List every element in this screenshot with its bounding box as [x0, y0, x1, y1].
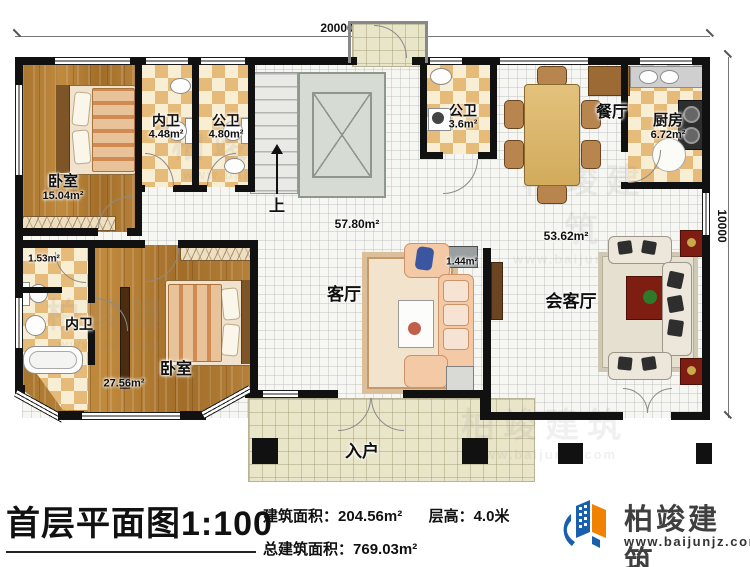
- total-area-value: 769.03m²: [353, 541, 417, 558]
- wall: [298, 390, 338, 398]
- wall: [22, 287, 62, 293]
- wall: [483, 248, 491, 412]
- dining-chair: [504, 140, 524, 169]
- sofa-cushion: [443, 328, 469, 350]
- armchair: [404, 355, 448, 388]
- table-decor: [408, 322, 421, 335]
- room-label-bath-inner-top: 内卫 4.48m²: [149, 113, 184, 142]
- area-label-tv-nook: 1.44m²: [446, 256, 478, 268]
- sofa-cushion: [443, 280, 469, 302]
- wall: [135, 185, 145, 192]
- kitchen-sink: [660, 70, 679, 84]
- building-area-value: 204.56m²: [338, 508, 402, 525]
- right-dimension-label: 10000: [715, 209, 729, 242]
- wall: [15, 228, 98, 236]
- burner: [683, 106, 700, 123]
- floor-plan-page: 20000 10000 柏竣建筑www.baijunjz.com 柏竣建筑www…: [0, 0, 750, 567]
- dining-table: [524, 84, 580, 186]
- column: [252, 438, 278, 464]
- room-label-bath-inner-bottom: 内卫: [65, 316, 93, 332]
- plant: [643, 290, 657, 304]
- building-area-stat: 建筑面积：204.56m² 层高：4.0米: [263, 505, 509, 526]
- area-label-bedroom-bottom: 27.56m²: [104, 378, 145, 391]
- pillow: [72, 129, 92, 164]
- sofa-pillow: [617, 356, 632, 370]
- dining-chair: [504, 100, 524, 129]
- column: [558, 443, 583, 464]
- tv-stand: [120, 287, 130, 389]
- room-label-entry: 入户: [345, 442, 379, 462]
- window: [500, 57, 588, 65]
- sofa-pillow: [641, 356, 657, 371]
- window: [430, 57, 462, 65]
- total-area-stat: 总建筑面积：769.03m²: [263, 538, 417, 559]
- corner-table: [446, 366, 474, 392]
- wall: [88, 330, 95, 365]
- pillow: [220, 287, 240, 321]
- total-area-label: 总建筑面积：: [263, 541, 353, 558]
- porch-edge: [425, 21, 428, 63]
- pillow: [71, 91, 91, 127]
- kitchen-sink: [639, 70, 658, 84]
- shaft-cross: [312, 92, 372, 178]
- wall: [671, 412, 710, 420]
- hall-cabinet: [491, 262, 503, 320]
- dining-chair: [581, 140, 601, 169]
- window: [55, 57, 130, 65]
- logo-icon: [556, 492, 620, 556]
- stairs-direction-arrow: [276, 152, 278, 194]
- person-figure: [414, 246, 434, 271]
- wall: [248, 57, 255, 192]
- wall: [621, 182, 709, 189]
- room-label-dining: 餐厅: [596, 104, 628, 122]
- porch-edge: [348, 21, 428, 24]
- window: [201, 57, 245, 65]
- wall: [15, 240, 145, 248]
- sofa-pillow: [667, 295, 685, 313]
- room-label-bedroom-bottom: 卧室: [160, 361, 192, 379]
- wall: [58, 411, 84, 420]
- pillow: [221, 323, 241, 356]
- column: [462, 438, 488, 464]
- wall: [127, 228, 142, 236]
- area-label-reception: 53.62m²: [544, 230, 589, 244]
- stairs-arrow-head: [271, 144, 283, 154]
- side-table-decor: [687, 238, 696, 247]
- wall: [135, 57, 142, 235]
- sofa-pillow: [667, 319, 684, 337]
- bed-blanket: [168, 284, 222, 362]
- plan-title: 首层平面图1:100: [6, 496, 273, 545]
- bathtub-inner: [29, 351, 77, 369]
- bed-headboard: [56, 85, 70, 173]
- floor-height-label: 层高：: [429, 508, 474, 525]
- wall: [702, 57, 710, 420]
- wall: [250, 245, 258, 398]
- sofa-pillow: [617, 240, 633, 255]
- window: [15, 85, 23, 175]
- wall: [478, 152, 497, 159]
- window: [263, 390, 298, 398]
- staircase: [250, 72, 298, 194]
- window: [640, 57, 692, 65]
- washing-machine-door: [432, 112, 444, 124]
- floor-height-value: 4.0米: [474, 508, 510, 525]
- dining-chair: [537, 184, 567, 204]
- wall: [178, 240, 258, 248]
- room-label-reception: 会客厅: [546, 292, 597, 312]
- room-label-kitchen: 厨房 6.72m²: [651, 112, 686, 142]
- wall: [192, 57, 199, 185]
- window: [702, 193, 710, 235]
- dining-chair: [537, 66, 567, 86]
- wall: [480, 412, 623, 420]
- sofa-pillow: [641, 240, 657, 255]
- area-label-closet: 1.53m²: [28, 253, 60, 265]
- window: [146, 57, 188, 65]
- building-area-label: 建筑面积：: [263, 508, 338, 525]
- logo-website: www.baijunjz.com: [624, 534, 750, 549]
- bay-window: [82, 412, 182, 420]
- room-label-bath-public-top: 公卫 4.80m²: [209, 113, 244, 142]
- area-label-hall: 57.80m²: [335, 218, 380, 232]
- wall: [420, 152, 443, 159]
- wall: [235, 185, 255, 192]
- logo-company-name: 柏竣建筑: [624, 496, 750, 567]
- porch-edge: [348, 21, 351, 63]
- wall: [88, 248, 95, 303]
- wall: [420, 57, 427, 159]
- room-label-bedroom-top: 卧室 15.04m²: [43, 173, 84, 203]
- stairs-up-label: 上: [269, 198, 285, 216]
- title-underline: [6, 551, 256, 553]
- wardrobe: [180, 246, 252, 261]
- sink: [25, 315, 46, 336]
- wall: [173, 185, 207, 192]
- sofa-cushion: [443, 304, 469, 326]
- sink: [170, 78, 191, 94]
- wall: [490, 57, 497, 159]
- sink: [430, 68, 452, 85]
- side-table-decor: [687, 366, 696, 375]
- wall: [403, 390, 488, 398]
- window: [15, 298, 23, 348]
- column: [696, 443, 712, 464]
- bed-blanket: [92, 88, 135, 172]
- room-label-living: 客厅: [327, 285, 361, 305]
- room-label-bath-public-mid: 公卫 3.6m²: [449, 103, 478, 132]
